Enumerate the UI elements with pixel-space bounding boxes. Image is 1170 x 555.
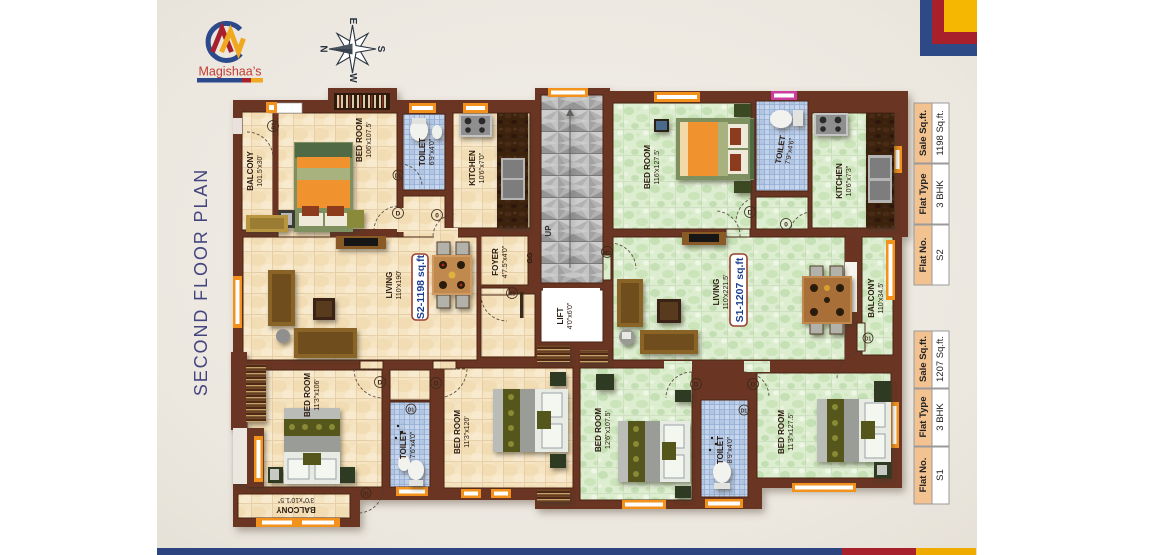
svg-text:D: D xyxy=(434,380,439,387)
svg-text:TOILET: TOILET xyxy=(716,436,725,464)
svg-text:116'x127.5': 116'x127.5' xyxy=(654,150,661,185)
svg-text:BED ROOM: BED ROOM xyxy=(594,408,603,452)
svg-text:11'3"x127.5': 11'3"x127.5' xyxy=(788,413,795,450)
svg-text:8'9"x4'0": 8'9"x4'0" xyxy=(727,436,734,463)
svg-text:LIVING: LIVING xyxy=(712,279,721,306)
svg-text:MD: MD xyxy=(603,250,611,256)
svg-text:12'6"x107.5': 12'6"x107.5' xyxy=(605,411,612,449)
svg-text:1198 Sq.ft.: 1198 Sq.ft. xyxy=(935,110,946,155)
svg-text:11'3"x106': 11'3"x106' xyxy=(314,379,321,411)
svg-text:101.5'x30': 101.5'x30' xyxy=(257,155,264,186)
svg-text:D1: D1 xyxy=(395,173,402,179)
svg-text:GG: GG xyxy=(527,252,534,263)
svg-text:W: W xyxy=(347,73,358,83)
svg-text:TOILET: TOILET xyxy=(418,138,427,166)
svg-text:LIVING: LIVING xyxy=(385,272,394,299)
svg-text:11'3"x120': 11'3"x120' xyxy=(464,416,471,448)
svg-text:BALCONY: BALCONY xyxy=(276,505,316,514)
svg-text:3 BHK: 3 BHK xyxy=(935,403,946,431)
svg-text:BED ROOM: BED ROOM xyxy=(453,410,462,454)
svg-text:FOYER: FOYER xyxy=(491,248,500,276)
svg-text:BED ROOM: BED ROOM xyxy=(777,410,786,454)
svg-text:Magishaa’s: Magishaa’s xyxy=(198,65,261,79)
svg-text:KITCHEN: KITCHEN xyxy=(468,150,477,186)
svg-text:N: N xyxy=(317,45,328,52)
svg-text:D: D xyxy=(378,379,383,386)
svg-text:7'6"x4'0": 7'6"x4'0" xyxy=(410,431,417,458)
svg-text:10'6"x7'3": 10'6"x7'3" xyxy=(846,165,853,196)
svg-text:LIFT: LIFT xyxy=(556,307,565,324)
svg-text:D1: D1 xyxy=(741,408,748,414)
svg-text:0: 0 xyxy=(435,212,439,219)
svg-text:S2-1198 sq.ft: S2-1198 sq.ft xyxy=(415,254,427,319)
svg-text:D1: D1 xyxy=(408,407,415,413)
svg-text:D1: D1 xyxy=(363,491,370,497)
svg-text:BALCONY: BALCONY xyxy=(246,151,255,191)
svg-text:S1-1207 sq.ft: S1-1207 sq.ft xyxy=(734,257,746,322)
svg-text:106'x107.5': 106'x107.5' xyxy=(366,122,373,157)
svg-text:Flat No.: Flat No. xyxy=(918,238,929,273)
svg-text:UP: UP xyxy=(544,225,553,237)
svg-text:D1: D1 xyxy=(865,336,872,342)
svg-text:D: D xyxy=(751,381,756,388)
svg-text:S: S xyxy=(375,46,386,53)
svg-text:110'x190': 110'x190' xyxy=(396,270,403,299)
svg-text:D: D xyxy=(396,210,401,217)
svg-text:0: 0 xyxy=(784,221,788,228)
svg-text:10'6"x7'0": 10'6"x7'0" xyxy=(479,152,486,183)
svg-text:BED ROOM: BED ROOM xyxy=(303,373,312,417)
svg-text:Flat Type: Flat Type xyxy=(918,397,929,438)
svg-text:Sale Sq.ft.: Sale Sq.ft. xyxy=(918,336,929,382)
svg-text:Sale Sq.ft.: Sale Sq.ft. xyxy=(918,110,929,156)
svg-text:E: E xyxy=(347,18,358,25)
svg-text:4'0"x6'0": 4'0"x6'0" xyxy=(567,302,574,329)
svg-text:Flat No.: Flat No. xyxy=(918,458,929,493)
svg-text:1207 Sq.ft.: 1207 Sq.ft. xyxy=(935,336,946,382)
svg-text:S2: S2 xyxy=(935,249,946,261)
svg-text:S1: S1 xyxy=(935,469,946,481)
svg-text:D1: D1 xyxy=(271,122,277,129)
svg-text:BALCONY: BALCONY xyxy=(867,278,876,318)
svg-text:SECOND FLOOR PLAN: SECOND FLOOR PLAN xyxy=(191,168,211,396)
svg-text:TOILET: TOILET xyxy=(399,431,408,459)
svg-text:D: D xyxy=(694,381,699,388)
svg-text:KITCHEN: KITCHEN xyxy=(835,163,844,199)
svg-text:MD: MD xyxy=(508,291,516,297)
svg-text:4'7.5"x4'0": 4'7.5"x4'0" xyxy=(502,245,509,278)
svg-text:110'x221.5': 110'x221.5' xyxy=(723,275,730,310)
svg-text:6'9"x4'0": 6'9"x4'0" xyxy=(429,138,436,165)
svg-text:3 BHK: 3 BHK xyxy=(935,180,946,208)
svg-text:3'0"x10'1.5": 3'0"x10'1.5" xyxy=(277,496,314,503)
svg-text:BED ROOM: BED ROOM xyxy=(355,118,364,162)
svg-text:Flat Type: Flat Type xyxy=(918,174,929,215)
svg-text:BED ROOM: BED ROOM xyxy=(643,145,652,189)
svg-text:D: D xyxy=(748,209,753,216)
svg-text:110'x34.5': 110'x34.5' xyxy=(878,283,885,314)
